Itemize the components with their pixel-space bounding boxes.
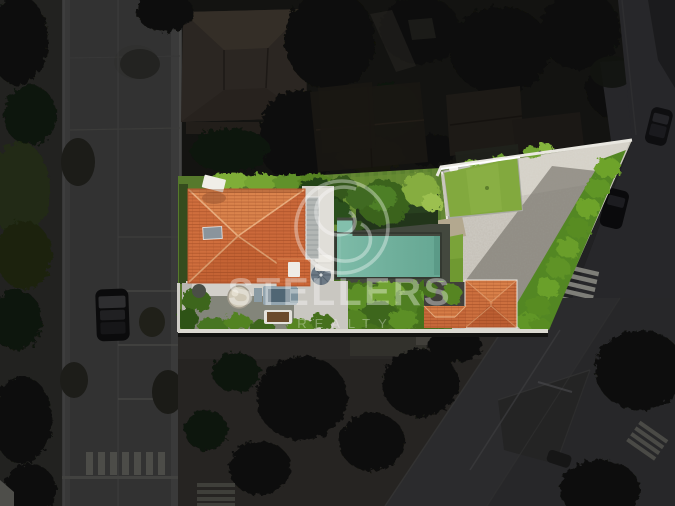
svg-text:REALTY: REALTY [297, 316, 395, 331]
svg-text:STELLERS: STELLERS [228, 271, 452, 314]
